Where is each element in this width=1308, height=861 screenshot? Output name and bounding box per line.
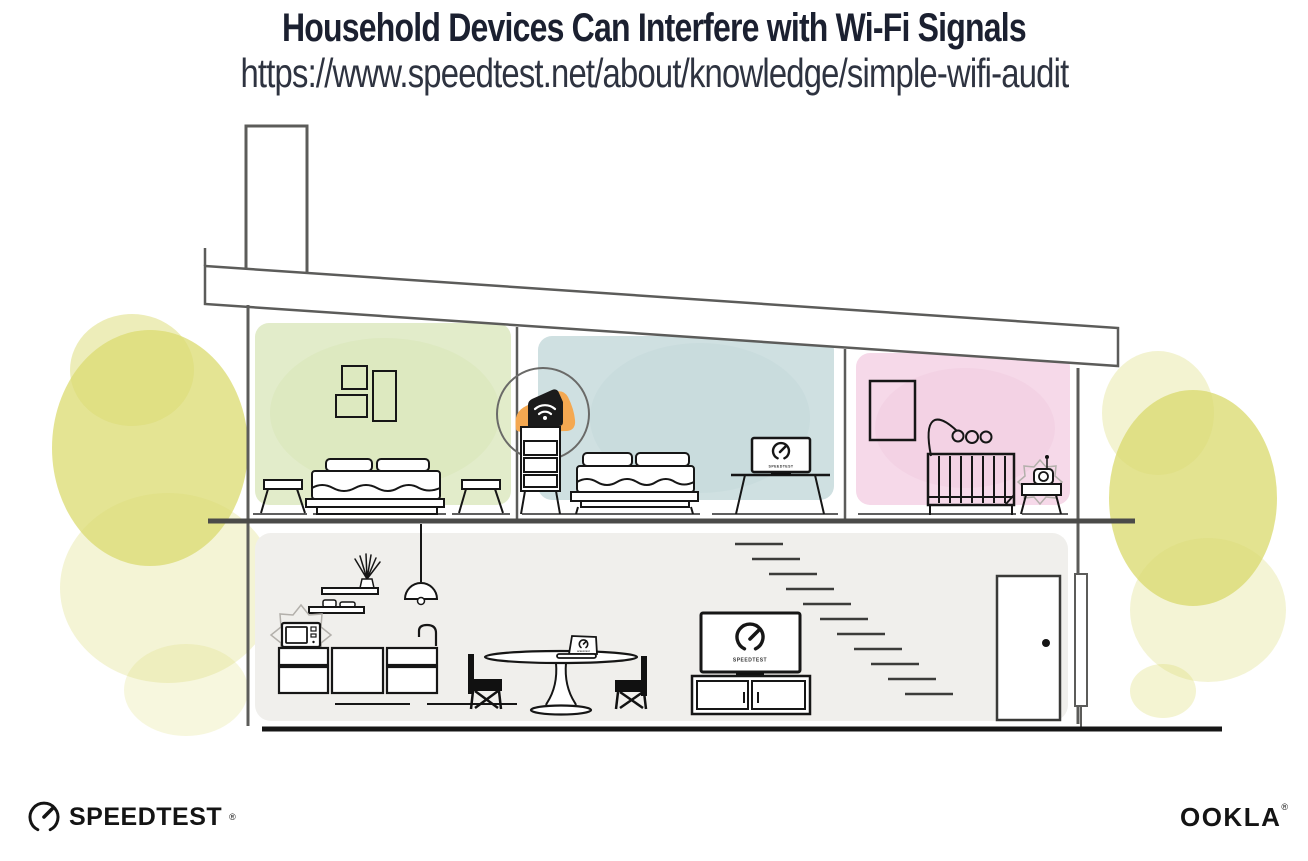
tv-console — [692, 676, 810, 714]
door-knob — [1042, 639, 1050, 647]
header: Household Devices Can Interfere with Wi-… — [0, 6, 1308, 96]
dresser — [521, 427, 560, 514]
tree-left — [52, 314, 276, 736]
tree-right — [1102, 351, 1286, 718]
microwave — [282, 623, 320, 647]
door — [997, 576, 1060, 720]
living-room-tv: SPEEDTEST — [701, 613, 800, 676]
page-subtitle-url: https://www.speedtest.net/about/knowledg… — [240, 50, 1068, 96]
laptop-label: SPEEDTEST — [577, 651, 591, 653]
chimney — [246, 126, 307, 273]
ookla-trademark: ® — [1281, 802, 1288, 812]
page-title: Household Devices Can Interfere with Wi-… — [282, 6, 1026, 50]
bedroom-tv: SPEEDTEST — [752, 438, 810, 475]
speedtest-trademark: ® — [229, 812, 236, 822]
ookla-wordmark: OOKLA — [1180, 802, 1281, 832]
drainpipe — [1075, 574, 1087, 729]
ookla-logo: OOKLA® — [1180, 802, 1288, 833]
house-illustration: SPEEDTEST — [0, 118, 1308, 758]
bedroom-tv-label: SPEEDTEST — [769, 465, 794, 469]
speedtest-wordmark: SPEEDTEST — [69, 803, 222, 832]
infographic-page: Household Devices Can Interfere with Wi-… — [0, 0, 1308, 861]
speedtest-gauge-icon — [579, 640, 587, 648]
wifi-router — [528, 389, 563, 426]
speedtest-logo: SPEEDTEST® — [26, 799, 236, 835]
living-tv-label: SPEEDTEST — [733, 658, 767, 664]
speedtest-gauge-icon — [26, 799, 62, 835]
